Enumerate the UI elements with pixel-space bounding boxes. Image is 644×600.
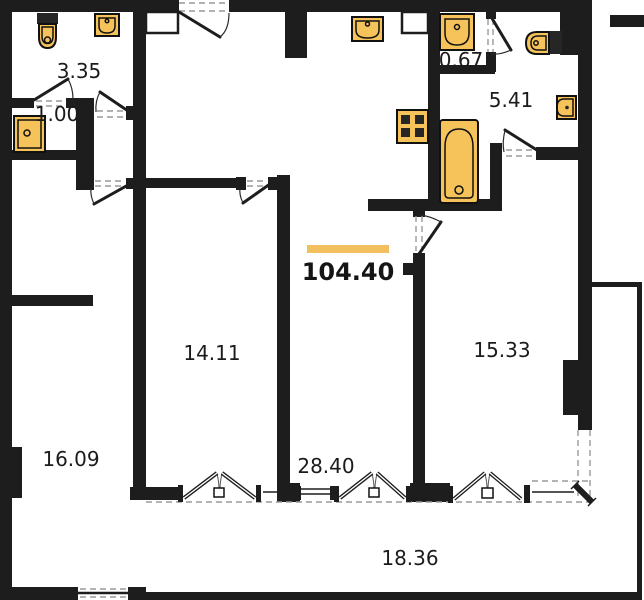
room-area-label-067: 0.67 (426, 48, 496, 72)
room-area-label-2840: 28.40 (291, 454, 361, 478)
room-area-label-1533: 15.33 (467, 338, 537, 362)
bathtub-fixture (440, 120, 478, 203)
balcony-french-door-1 (178, 473, 278, 502)
entrance-door (179, 3, 229, 37)
room-area-label-1836: 18.36 (375, 546, 445, 570)
water-heater-fixture (557, 96, 576, 119)
window-fixed-segment (297, 486, 334, 500)
kitchen-sink-fixture (352, 17, 383, 41)
door-shower-room (96, 92, 131, 117)
balcony-side-window (571, 481, 596, 506)
window-bottom-left (78, 589, 128, 597)
balcony-french-door-3 (448, 473, 574, 503)
total-area-label: 104.40 (298, 258, 398, 286)
door-bedroom-right (416, 215, 441, 254)
floor-plan: 3.35 1.00 0.67 5.41 14.11 15.33 16.09 28… (0, 0, 644, 600)
room-area-label-1609: 16.09 (36, 447, 106, 471)
door-bathroom-541 (503, 130, 540, 156)
shaft-niche-kitchen (402, 12, 428, 33)
room-area-label-1411: 14.11 (177, 341, 247, 365)
walls (0, 0, 644, 600)
total-area-accent-bar (307, 245, 389, 253)
room-area-label-100: 1.00 (22, 102, 92, 126)
toilet-fixture-2 (526, 31, 562, 54)
door-hall-left (91, 181, 128, 204)
stove-fixture (397, 110, 428, 143)
room-area-label-335: 3.35 (44, 59, 114, 83)
toilet-fixture-1 (37, 13, 58, 48)
sink-fixture-1 (95, 14, 119, 36)
washbasin-fixture-067 (440, 14, 474, 50)
floor-plan-drawing (0, 0, 644, 600)
shaft-niche-entry (146, 12, 178, 33)
room-area-label-541: 5.41 (476, 88, 546, 112)
